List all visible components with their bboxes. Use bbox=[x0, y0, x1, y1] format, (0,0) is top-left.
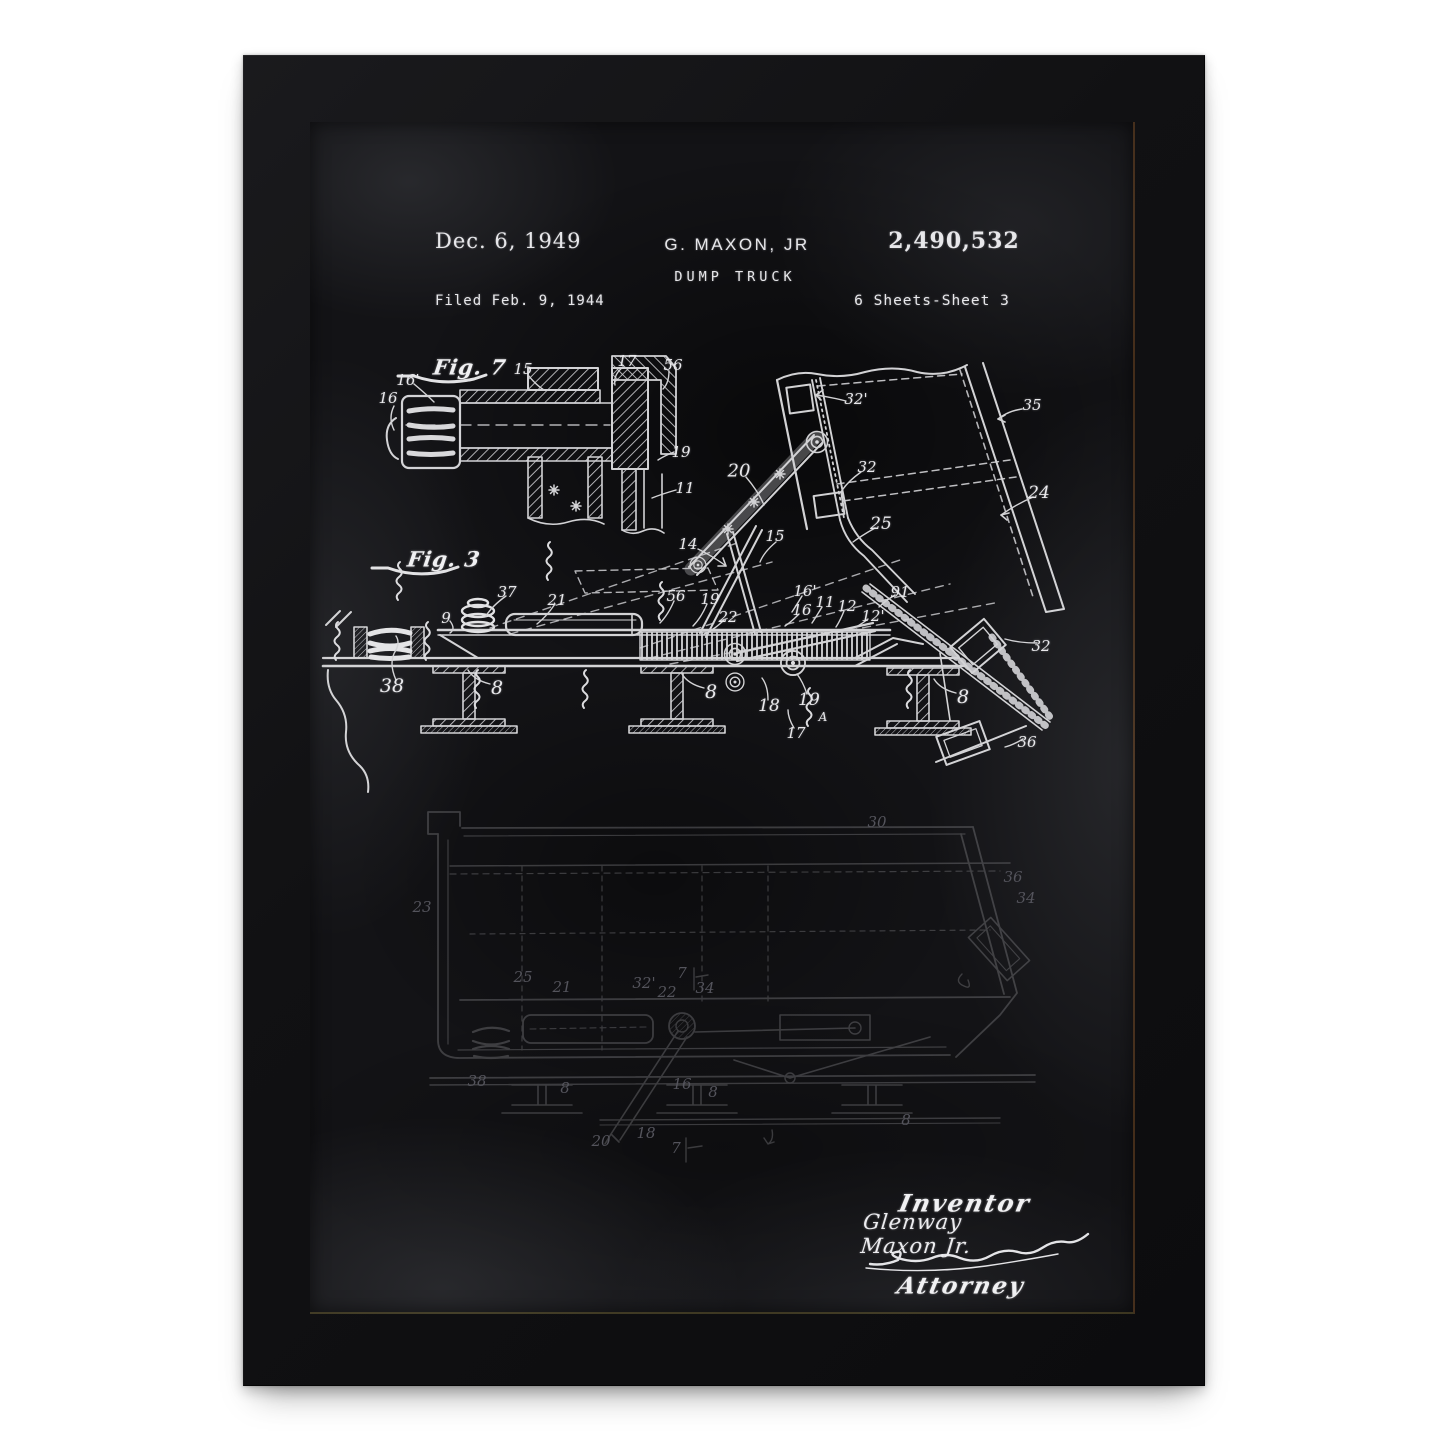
part-label: 15 bbox=[765, 527, 784, 545]
part-label: 91 bbox=[890, 583, 909, 601]
part-label: 16 bbox=[672, 1075, 691, 1093]
part-label: 16 bbox=[792, 601, 811, 619]
part-label: A bbox=[819, 710, 828, 724]
part-label: 20 bbox=[728, 461, 751, 482]
part-label: 25 bbox=[870, 514, 892, 534]
patent-drawing bbox=[310, 122, 1135, 1314]
part-label: 20 bbox=[591, 1132, 610, 1150]
picture-frame: Dec. 6, 1949 G. MAXON, JR DUMP TRUCK 2,4… bbox=[243, 55, 1205, 1386]
part-label: 56 bbox=[663, 356, 682, 374]
part-label: 38 bbox=[380, 675, 404, 697]
bottom-figure-drawing bbox=[428, 812, 1035, 1162]
part-label: 56 bbox=[666, 587, 685, 605]
photo-background: Dec. 6, 1949 G. MAXON, JR DUMP TRUCK 2,4… bbox=[0, 0, 1445, 1445]
patent-number: 2,490,532 bbox=[888, 228, 1019, 254]
part-label: 16 bbox=[378, 389, 397, 407]
patent-filed-date: Filed Feb. 9, 1944 bbox=[435, 293, 605, 309]
part-label: 25 bbox=[513, 968, 532, 986]
part-label: 15 bbox=[513, 360, 532, 378]
part-label: 8 bbox=[708, 1083, 718, 1101]
patent-sheet-info: 6 Sheets-Sheet 3 bbox=[854, 293, 1010, 309]
part-label: 24 bbox=[1028, 483, 1050, 503]
part-label: 32 bbox=[857, 458, 876, 476]
part-label: 7 bbox=[671, 1139, 681, 1157]
part-label: 23 bbox=[412, 898, 431, 916]
part-label: 21 bbox=[552, 978, 571, 996]
part-label: 16' bbox=[396, 371, 419, 389]
part-label: 35 bbox=[1022, 396, 1041, 414]
part-label: 34 bbox=[695, 979, 714, 997]
part-label: 14 bbox=[678, 535, 697, 553]
part-label: 8 bbox=[901, 1111, 911, 1129]
part-label: 21 bbox=[547, 591, 566, 609]
part-label: 8 bbox=[491, 677, 503, 699]
part-label: 17 bbox=[617, 352, 636, 370]
part-label: 22 bbox=[718, 608, 737, 626]
part-label: 16' bbox=[793, 582, 816, 600]
signature-attorney-label: Attorney bbox=[895, 1273, 1028, 1300]
part-label: 12 bbox=[837, 597, 856, 615]
part-label: 12' bbox=[861, 607, 884, 625]
part-label: 38 bbox=[467, 1072, 486, 1090]
part-label: 22 bbox=[657, 983, 676, 1001]
part-label: 7 bbox=[677, 964, 687, 982]
part-label: 34 bbox=[1016, 889, 1035, 907]
part-label: 8 bbox=[957, 686, 969, 708]
patent-inventor: G. MAXON, JR bbox=[664, 235, 809, 255]
fig7-drawing bbox=[387, 356, 676, 533]
part-label: 8 bbox=[705, 681, 717, 703]
part-label: 18 bbox=[758, 696, 780, 716]
part-label: 19 bbox=[700, 590, 719, 608]
part-label: 11 bbox=[675, 479, 694, 497]
part-label: 37 bbox=[497, 583, 516, 601]
patent-print: Dec. 6, 1949 G. MAXON, JR DUMP TRUCK 2,4… bbox=[310, 122, 1135, 1314]
part-label: 36 bbox=[1017, 733, 1036, 751]
signature-inventor-name: Glenway Maxon Jr. bbox=[859, 1210, 1046, 1258]
part-label: 8 bbox=[560, 1079, 570, 1097]
part-label: 32 bbox=[1031, 637, 1050, 655]
fig7-caption: Fig. 7 bbox=[432, 355, 508, 380]
part-label: 30 bbox=[867, 813, 886, 831]
fig3-caption: Fig. 3 bbox=[406, 547, 482, 572]
part-label: 11 bbox=[815, 593, 834, 611]
part-label: 32' bbox=[844, 390, 867, 408]
patent-date: Dec. 6, 1949 bbox=[435, 229, 582, 253]
patent-title: DUMP TRUCK bbox=[674, 269, 795, 285]
part-label: 19 bbox=[798, 690, 820, 710]
part-label: 17 bbox=[786, 724, 805, 742]
part-label: 19 bbox=[671, 443, 690, 461]
part-label: 32' bbox=[632, 974, 655, 992]
part-label: 36 bbox=[1003, 868, 1022, 886]
part-label: 18 bbox=[636, 1124, 655, 1142]
part-label: 9 bbox=[441, 609, 451, 627]
